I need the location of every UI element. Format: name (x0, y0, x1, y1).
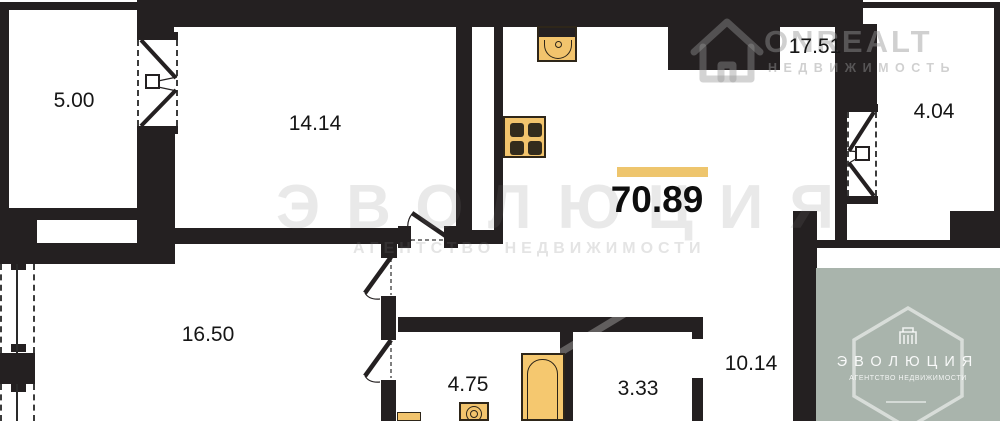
wall (456, 27, 472, 244)
area-label-balcony-left: 5.00 (54, 89, 95, 113)
stove-fixture (503, 116, 546, 158)
bathtub-basin (527, 359, 558, 421)
area-label-bathroom: 4.75 (448, 373, 489, 397)
door-post (692, 378, 703, 421)
area-label-balcony-right: 4.04 (914, 100, 955, 124)
wall (381, 380, 396, 421)
wall (793, 211, 817, 421)
wall (0, 218, 37, 264)
wall (0, 353, 35, 384)
area-label-wc: 3.33 (618, 377, 659, 401)
washbasin-fixture (397, 412, 421, 421)
area-label-bedroom: 14.14 (289, 112, 342, 136)
window-glass-line (16, 384, 18, 421)
window-balcony-right (847, 112, 877, 196)
wall (456, 230, 503, 244)
building-icon (900, 328, 916, 344)
wall (863, 2, 1000, 8)
hexagon-icon (816, 268, 1000, 421)
kitchen-sink-fixture (537, 26, 577, 62)
wall (398, 317, 703, 332)
window-post (137, 126, 178, 134)
window-facade-lower (0, 384, 35, 421)
sink-drain (555, 41, 562, 48)
door-post (692, 332, 703, 339)
total-area-label: 70.89 (611, 179, 704, 221)
door-post (381, 240, 397, 258)
wall (494, 27, 503, 234)
stove-burner (528, 141, 542, 155)
wall (381, 296, 396, 340)
badge-subtitle: АГЕНТСТВО НЕДВИЖИМОСТИ (849, 375, 967, 382)
wall (668, 0, 780, 70)
bathtub-fixture (521, 353, 565, 421)
wall (0, 2, 9, 220)
door-swing-arc (365, 293, 380, 299)
wall (140, 228, 404, 244)
window-post (137, 32, 178, 40)
floor-plan-canvas: 5.00 14.14 17.51 4.04 16.50 4.75 3.33 10… (0, 0, 1000, 421)
wall (950, 211, 1000, 248)
wall (994, 2, 1000, 214)
stove-burner (510, 123, 524, 137)
door-leaf (365, 257, 391, 293)
sink-back-ledge (539, 28, 575, 37)
window-post (845, 104, 878, 112)
evolution-agency-badge: ЭВОЛЮЦИЯ АГЕНТСТВО НЕДВИЖИМОСТИ (816, 268, 1000, 421)
area-label-hallway: 10.14 (725, 352, 778, 376)
area-label-living-room: 16.50 (182, 323, 235, 347)
wall (845, 24, 877, 108)
window-balcony-left (137, 40, 178, 126)
window-facade-upper (0, 264, 35, 353)
toilet-fixture (459, 402, 489, 421)
badge-divider-line (886, 401, 926, 403)
wall (35, 243, 175, 264)
window-post (845, 196, 878, 204)
stove-burner (510, 141, 524, 155)
wall (817, 240, 957, 248)
stove-burner (528, 123, 542, 137)
door-swing-arc (365, 376, 380, 382)
door-post (398, 226, 411, 248)
total-area-underline (617, 167, 708, 177)
badge-title: ЭВОЛЮЦИЯ (837, 354, 980, 370)
toilet-tank-circle-inner (470, 410, 478, 418)
wall (0, 2, 143, 10)
window-glass-line (16, 264, 18, 353)
area-label-kitchen-living: 17.51 (789, 35, 842, 59)
door-leaf (365, 340, 391, 376)
